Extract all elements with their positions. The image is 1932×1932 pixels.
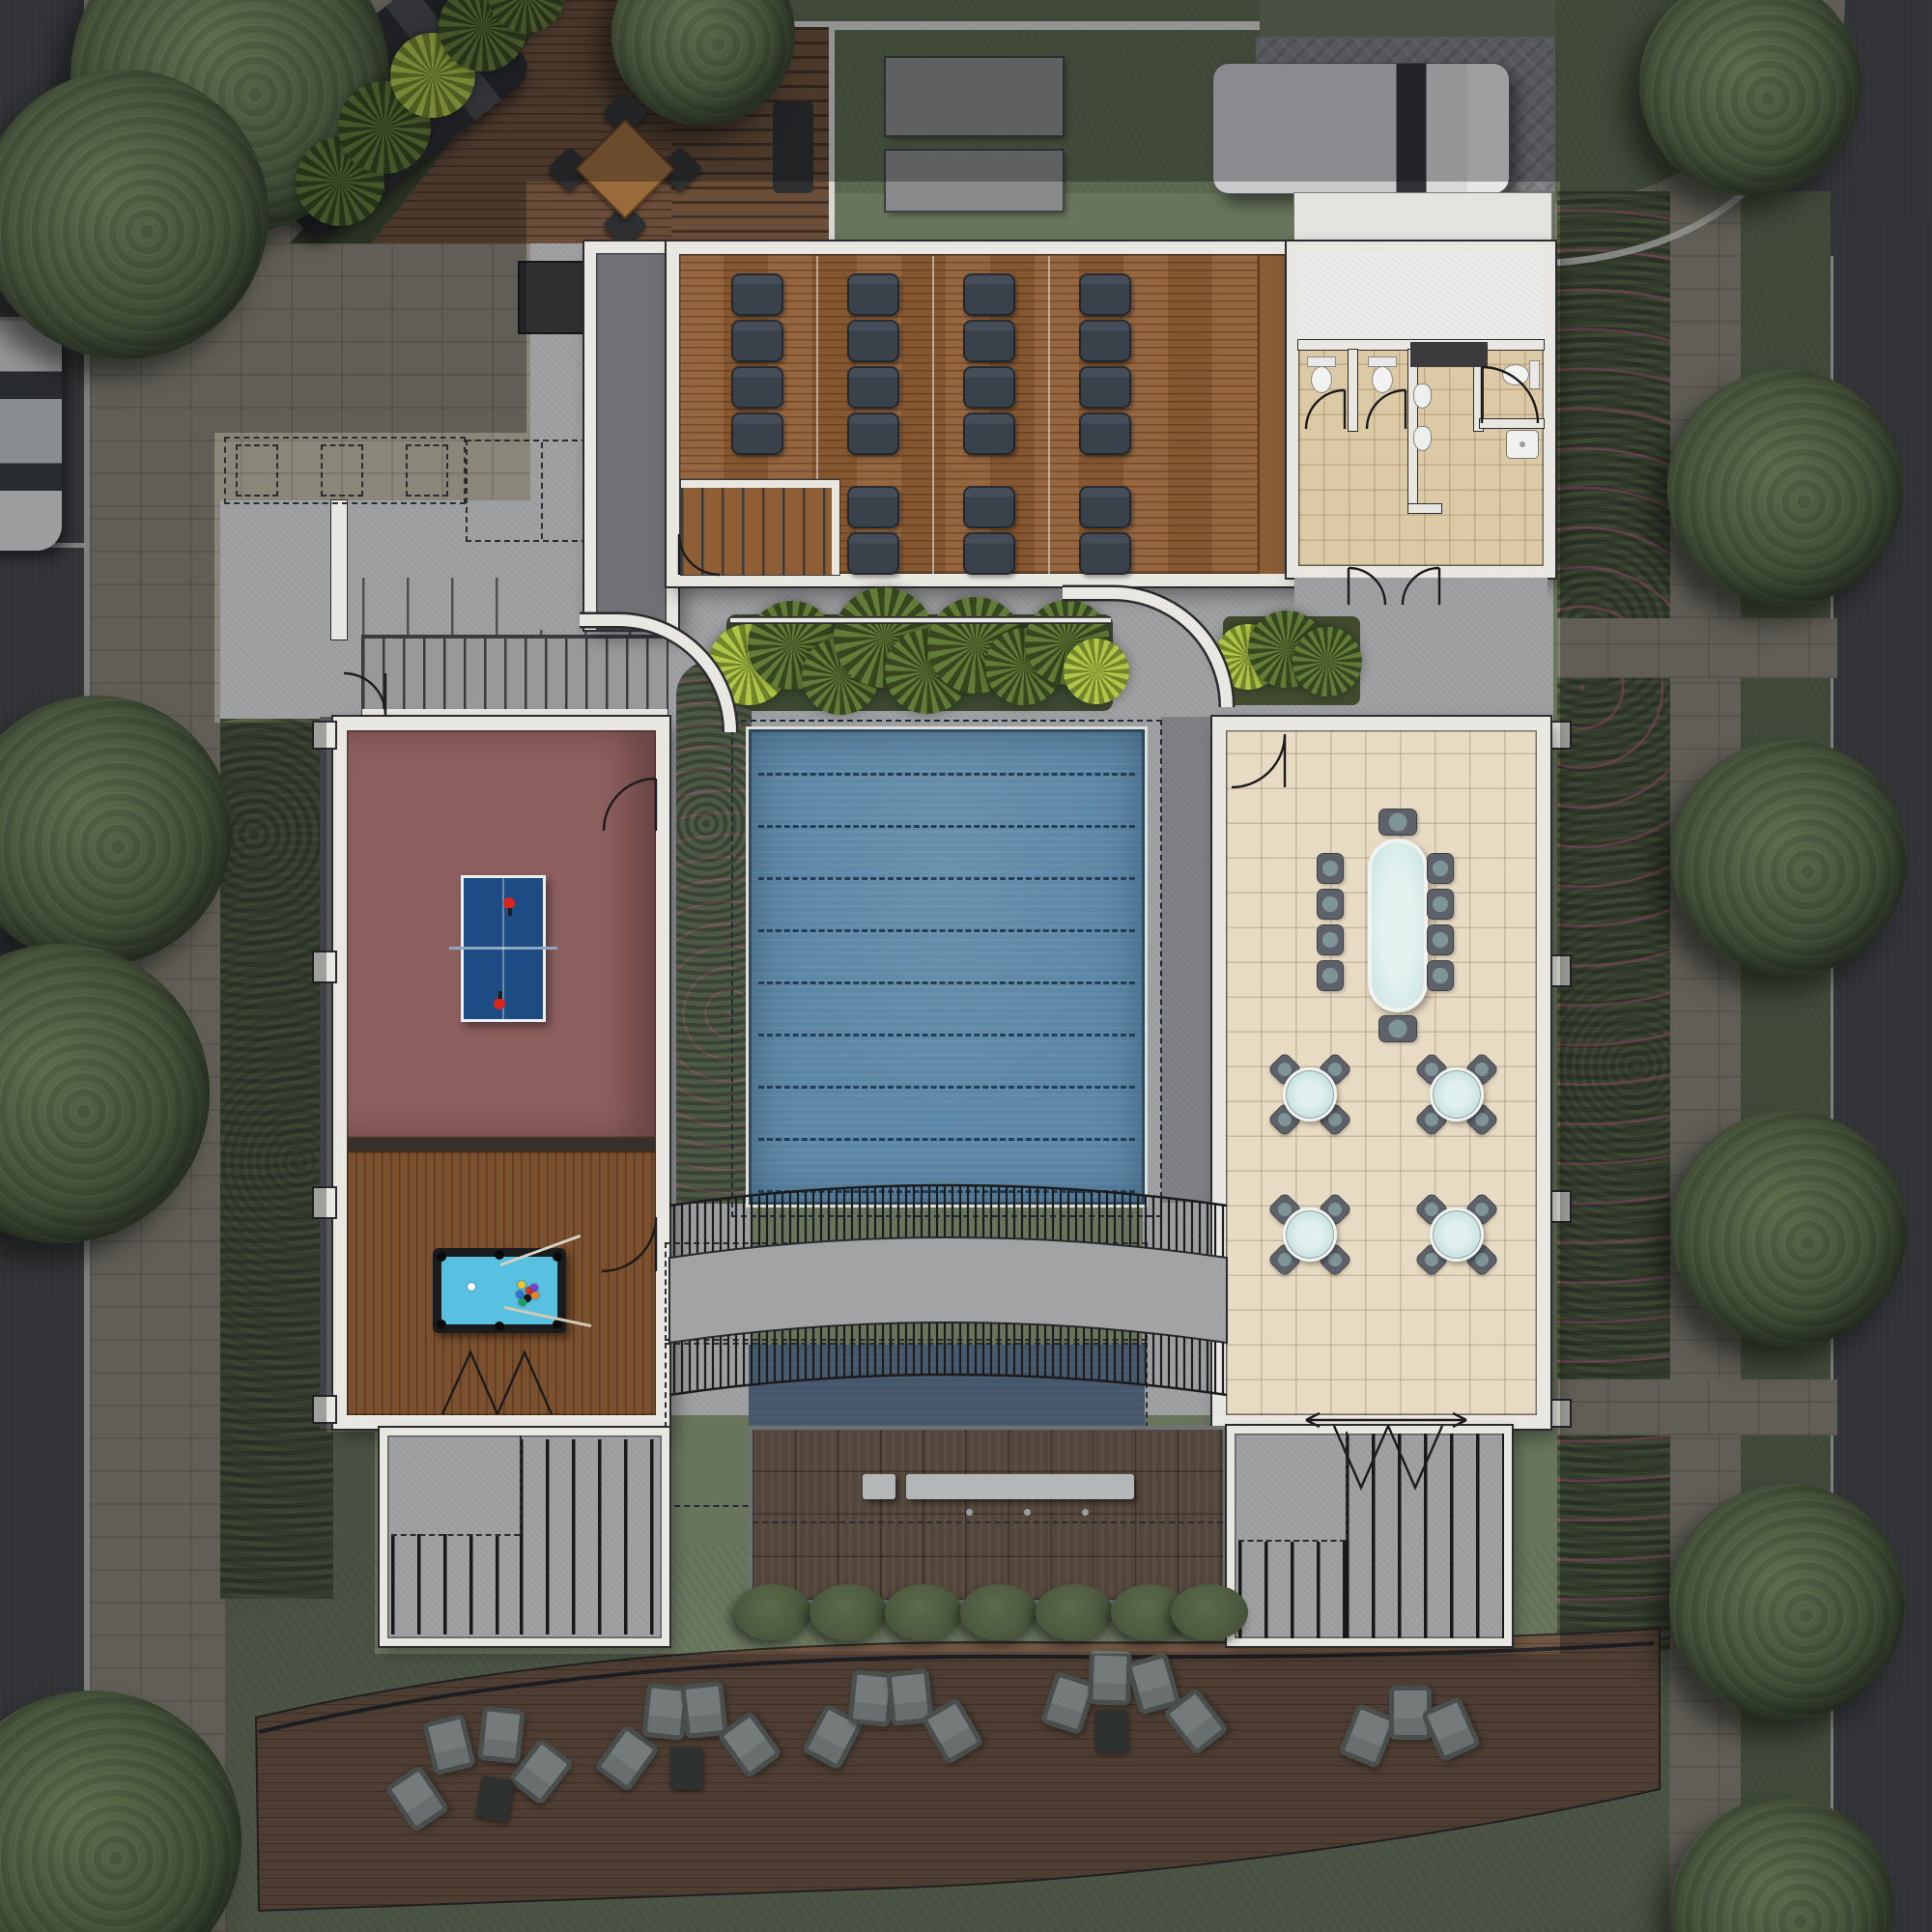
plan-furniture-layer <box>0 0 1932 1932</box>
media-seat <box>963 273 1015 316</box>
media-seat <box>1079 486 1131 528</box>
shrub <box>734 1584 811 1640</box>
dining-chair <box>1428 890 1453 919</box>
dining-chair <box>1318 854 1343 883</box>
media-seat <box>847 412 899 455</box>
billiard-ball <box>468 1283 475 1291</box>
pool-lane-line <box>758 825 1135 828</box>
billiard-ball <box>530 1284 538 1292</box>
media-seat <box>1079 412 1131 455</box>
media-seat <box>847 273 899 316</box>
dining-chair <box>1318 925 1343 954</box>
media-seat <box>847 486 899 528</box>
media-seat <box>847 320 899 362</box>
pool-lane-line <box>758 877 1135 880</box>
dining-chair <box>1379 810 1416 835</box>
pool-lane-line <box>758 981 1135 984</box>
billiard-ball <box>518 1281 526 1289</box>
shrub <box>960 1584 1037 1640</box>
media-seat <box>963 412 1015 455</box>
shrub <box>1171 1584 1248 1640</box>
media-seat <box>1079 532 1131 575</box>
media-seat <box>847 532 899 575</box>
media-seat <box>731 412 783 455</box>
media-seat <box>1079 320 1131 362</box>
dining-chair <box>1428 961 1453 990</box>
shrub <box>1036 1584 1113 1640</box>
round-dining-table <box>1430 1067 1484 1122</box>
media-seat <box>731 366 783 409</box>
billiard-ball <box>516 1291 524 1298</box>
media-seat <box>963 366 1015 409</box>
media-seat <box>731 273 783 316</box>
media-seat <box>847 366 899 409</box>
pool-lane-line <box>758 929 1135 932</box>
bush-plant <box>1293 627 1362 696</box>
pool-lane-line <box>758 1086 1135 1089</box>
round-dining-table <box>1283 1067 1337 1122</box>
media-seat <box>1079 366 1131 409</box>
media-seat <box>731 320 783 362</box>
media-seat <box>963 532 1015 575</box>
round-dining-table <box>1430 1207 1484 1262</box>
dining-chair <box>1428 854 1453 883</box>
dining-chair <box>1428 925 1453 954</box>
pool-lane-line <box>758 1034 1135 1037</box>
shrub <box>885 1584 962 1640</box>
round-dining-table <box>1283 1207 1337 1262</box>
shrub <box>810 1584 887 1640</box>
media-seat <box>963 320 1015 362</box>
dining-chair <box>1379 1016 1416 1041</box>
pool-lane-line <box>758 1138 1135 1141</box>
media-seat <box>1079 273 1131 316</box>
pool-lane-line <box>758 1190 1135 1193</box>
dining-chair <box>1318 961 1343 990</box>
media-seat <box>963 486 1015 528</box>
dining-chair <box>1318 890 1343 919</box>
billiard-ball <box>519 1298 526 1306</box>
pool-lane-line <box>758 773 1135 776</box>
palm-plant <box>1064 639 1129 704</box>
site-plan-canvas <box>0 0 1932 1932</box>
billiard-ball <box>531 1292 539 1299</box>
